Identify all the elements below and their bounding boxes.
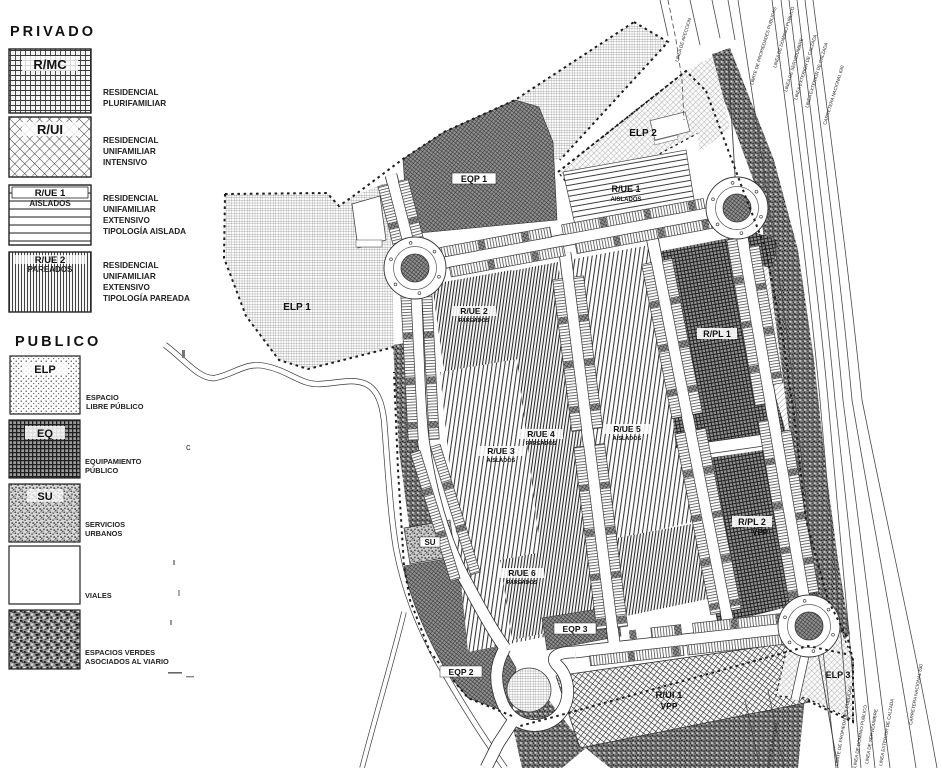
- svg-text:ELP 2: ELP 2: [629, 128, 657, 139]
- svg-text:SU: SU: [424, 538, 435, 547]
- svg-text:SERVICIOS: SERVICIOS: [85, 520, 125, 529]
- svg-text:EQP 2: EQP 2: [449, 667, 474, 677]
- svg-text:EQUIPAMIENTO: EQUIPAMIENTO: [85, 457, 142, 466]
- svg-text:R/UE 2: R/UE 2: [460, 306, 488, 316]
- svg-text:PRIVADO: PRIVADO: [10, 24, 96, 40]
- svg-text:PAREADOS: PAREADOS: [526, 441, 557, 447]
- svg-text:PUBLICO: PUBLICO: [15, 334, 101, 350]
- svg-text:LIBRE PÚBLICO: LIBRE PÚBLICO: [86, 402, 144, 411]
- svg-text:R/UE 5: R/UE 5: [613, 424, 641, 434]
- svg-text:EXTENSIVO: EXTENSIVO: [103, 216, 150, 225]
- svg-text:ELP: ELP: [34, 364, 55, 376]
- svg-text:INTENSIVO: INTENSIVO: [103, 158, 148, 167]
- svg-text:RESIDENCIAL: RESIDENCIAL: [103, 194, 159, 203]
- svg-text:AISLADOS: AISLADOS: [29, 199, 71, 208]
- svg-text:R/UE 4: R/UE 4: [527, 429, 555, 439]
- svg-text:UNIFAMILIAR: UNIFAMILIAR: [103, 205, 156, 214]
- svg-text:TIPOLOGÍA AISLADA: TIPOLOGÍA AISLADA: [103, 226, 186, 236]
- svg-text:PLURIFAMILIAR: PLURIFAMILIAR: [103, 99, 166, 108]
- svg-text:SU: SU: [37, 491, 52, 503]
- svg-text:PAREADOS: PAREADOS: [507, 580, 538, 586]
- svg-text:R/UI 1: R/UI 1: [656, 690, 684, 701]
- svg-text:ASOCIADOS AL VIARIO: ASOCIADOS AL VIARIO: [85, 657, 169, 666]
- svg-text:R/UE 1: R/UE 1: [611, 184, 640, 194]
- svg-text:R/UE 6: R/UE 6: [508, 568, 536, 578]
- svg-text:URBANOS: URBANOS: [85, 529, 122, 538]
- svg-text:UNIFAMILIAR: UNIFAMILIAR: [103, 272, 156, 281]
- svg-text:AISLADOS: AISLADOS: [610, 197, 641, 203]
- svg-text:ELP 3: ELP 3: [826, 670, 851, 680]
- svg-text:PÚBLICO: PÚBLICO: [85, 466, 119, 475]
- svg-text:R/MC: R/MC: [33, 57, 67, 72]
- svg-text:ELP 1: ELP 1: [283, 302, 311, 313]
- svg-text:EQP 1: EQP 1: [461, 174, 487, 184]
- svg-text:ESPACIO: ESPACIO: [86, 393, 119, 402]
- svg-text:TIPOLOGÍA PAREADA: TIPOLOGÍA PAREADA: [103, 293, 190, 303]
- svg-text:UNIFAMILIAR: UNIFAMILIAR: [103, 147, 156, 156]
- svg-text:RESIDENCIAL: RESIDENCIAL: [103, 261, 159, 270]
- svg-text:R/UE 3: R/UE 3: [487, 446, 515, 456]
- svg-text:EQ: EQ: [37, 428, 53, 440]
- svg-text:EQP 3: EQP 3: [563, 624, 588, 634]
- svg-text:R/PL 1: R/PL 1: [703, 329, 731, 339]
- svg-text:RESIDENCIAL: RESIDENCIAL: [103, 136, 159, 145]
- svg-text:R/PL 2: R/PL 2: [738, 517, 766, 527]
- svg-text:ESPACIOS VERDES: ESPACIOS VERDES: [85, 648, 155, 657]
- svg-text:RESIDENCIAL: RESIDENCIAL: [103, 88, 159, 97]
- svg-text:EXTENSIVO: EXTENSIVO: [103, 283, 150, 292]
- svg-text:PAREADOS: PAREADOS: [459, 318, 490, 324]
- svg-text:AISLADOS: AISLADOS: [613, 436, 642, 442]
- svg-text:R/UI: R/UI: [37, 122, 63, 137]
- svg-text:AISLADOS: AISLADOS: [487, 458, 516, 464]
- svg-text:VPP: VPP: [660, 701, 677, 711]
- svg-text:PAREADOS: PAREADOS: [28, 265, 73, 274]
- svg-text:R/UE 1: R/UE 1: [35, 188, 66, 199]
- svg-text:VIALES: VIALES: [85, 591, 112, 600]
- svg-text:VPP: VPP: [752, 528, 769, 537]
